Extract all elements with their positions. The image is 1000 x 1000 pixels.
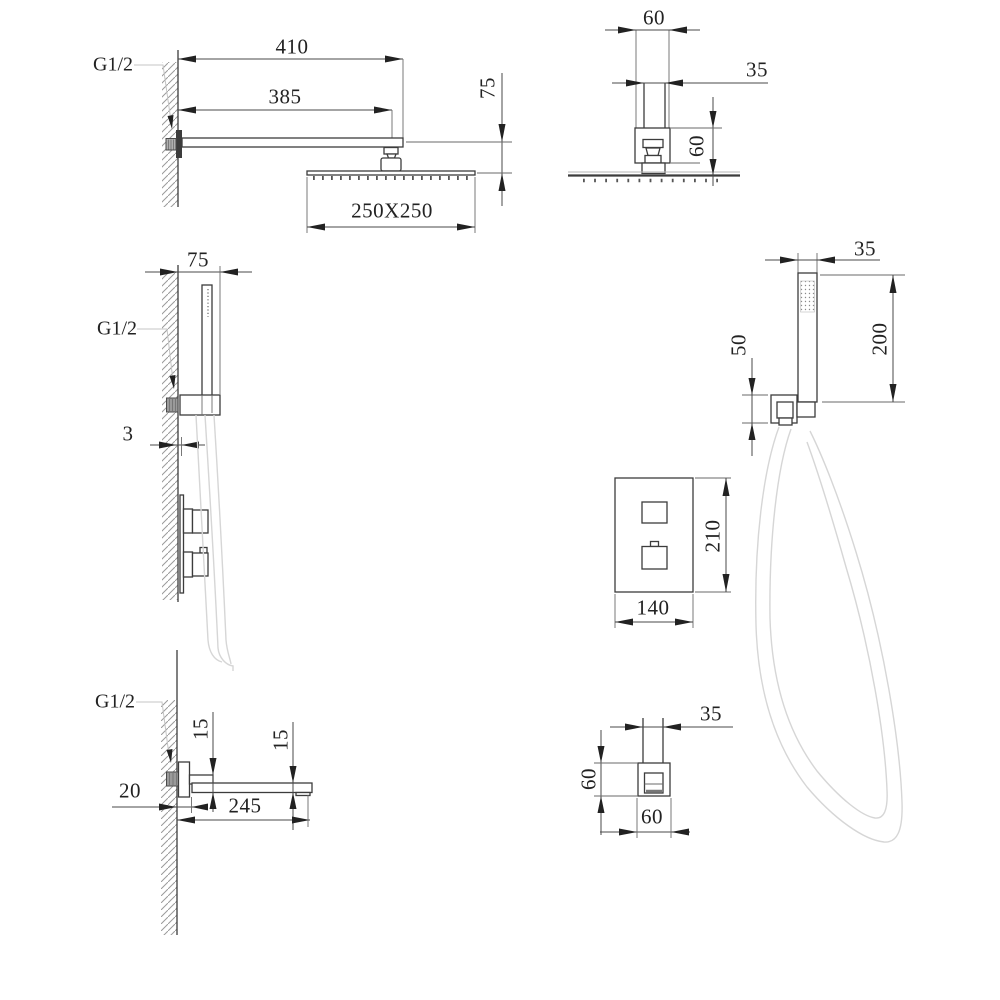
view-shower-head-side [134, 50, 512, 233]
view-spout-front [594, 718, 733, 838]
drawing-linework [0, 0, 1000, 1000]
dim-label-plate-height: 210 [701, 520, 726, 553]
view-spout-side [112, 650, 312, 935]
dim-label-wall-offset: 20 [119, 779, 141, 804]
dim-label-head-drop: 75 [476, 77, 501, 99]
dim-label-thickness-tip: 15 [269, 729, 294, 751]
dim-label-escutcheon-height: 60 [685, 135, 710, 157]
dim-label-handle-length: 200 [868, 323, 893, 356]
dim-label-arm-width: 35 [746, 58, 768, 83]
dim-label-spout-body-height: 60 [577, 768, 602, 790]
dim-label-spout-body-width: 60 [641, 805, 663, 830]
dim-label-outlet-height: 50 [727, 334, 752, 356]
dimension-drawing-page: G1/2 410 385 75 250X250 60 35 60 75 G1/2… [0, 0, 1000, 1000]
dim-label-spout-length: 245 [229, 794, 262, 819]
dim-label-plate-gap: 3 [123, 422, 134, 447]
view-hand-shower-side [137, 265, 252, 671]
dim-label-arm-length: 410 [276, 35, 309, 60]
dim-label-bracket-depth: 75 [187, 248, 209, 273]
dim-label-escutcheon-width: 60 [643, 6, 665, 31]
view-shower-head-front [568, 27, 768, 187]
dim-label-thickness-near: 15 [189, 718, 214, 740]
dim-label-head-size: 250X250 [351, 199, 433, 224]
dim-label-spout-tube-width: 35 [700, 702, 722, 727]
view-mixer-valve-front [615, 478, 731, 628]
dim-label-handle-width: 35 [854, 237, 876, 262]
dim-label-arm-reach: 385 [269, 85, 302, 110]
thread-label-hand-shower: G1/2 [97, 318, 137, 341]
dim-label-plate-width: 140 [637, 596, 670, 621]
thread-label-shower-head: G1/2 [93, 54, 133, 77]
thread-label-spout: G1/2 [95, 691, 135, 714]
